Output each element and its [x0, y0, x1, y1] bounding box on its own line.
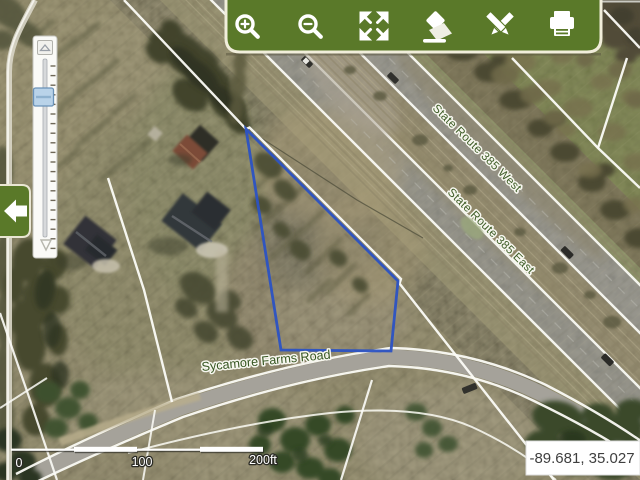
svg-text:-89.681, 35.027: -89.681, 35.027: [529, 450, 634, 467]
svg-text:100: 100: [132, 455, 153, 469]
svg-text:200ft: 200ft: [249, 453, 277, 467]
svg-text:0: 0: [16, 456, 23, 470]
